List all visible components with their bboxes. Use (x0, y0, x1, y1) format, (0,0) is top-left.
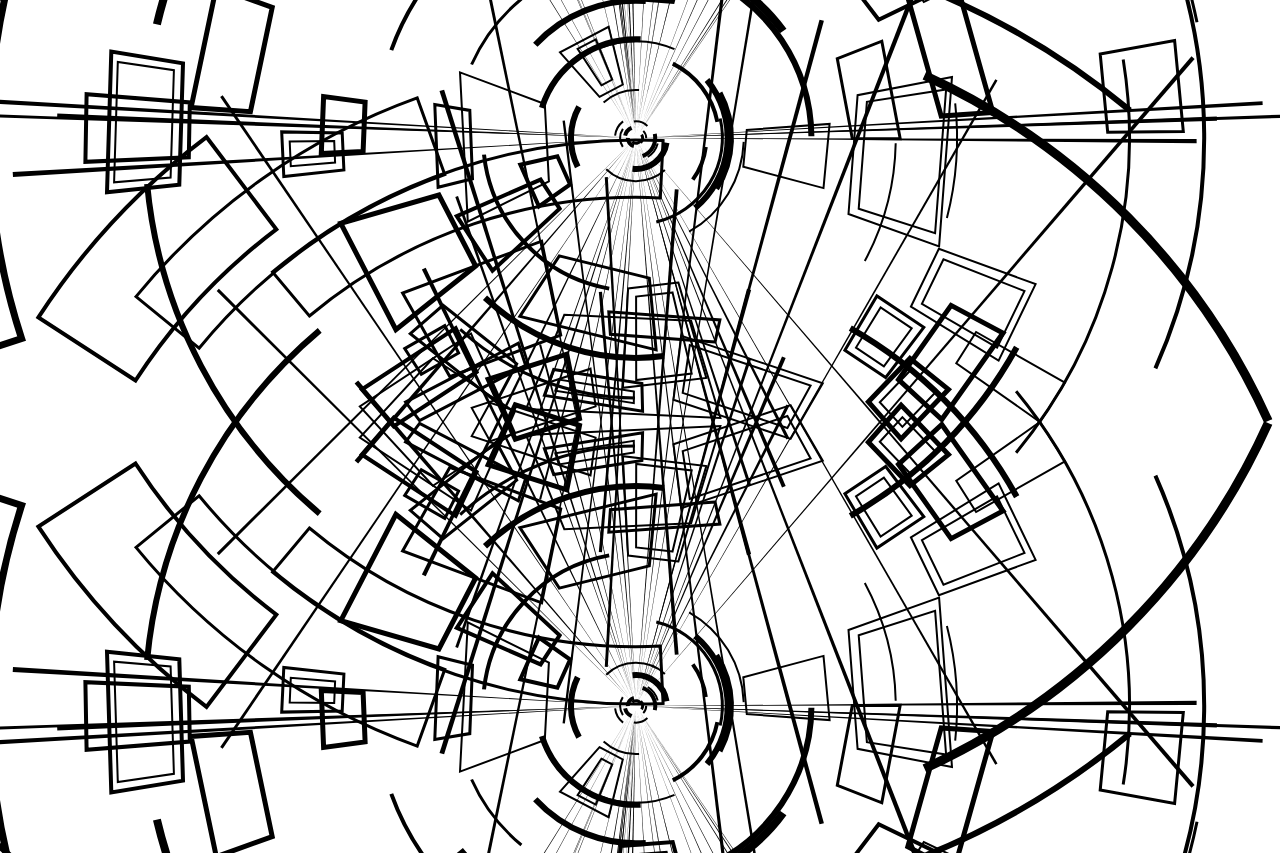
vortex-line-art (0, 0, 1280, 853)
artwork-background (0, 0, 1280, 853)
artwork-stage (0, 0, 1280, 853)
